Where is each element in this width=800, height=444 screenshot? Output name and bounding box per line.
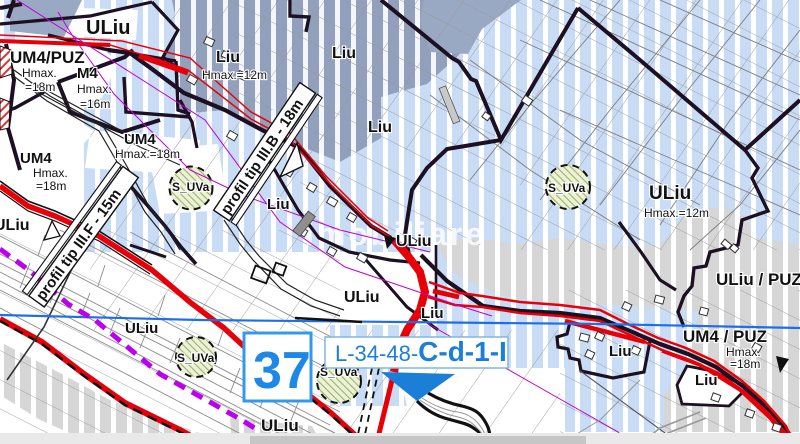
svg-text:ULiu: ULiu bbox=[125, 320, 158, 337]
svg-text:UM4: UM4 bbox=[20, 150, 52, 167]
svg-text:UM4 / PUZ: UM4 / PUZ bbox=[683, 327, 767, 346]
svg-text:S_UVa: S_UVa bbox=[177, 351, 215, 365]
svg-text:ULiu: ULiu bbox=[86, 17, 130, 39]
svg-text:M4: M4 bbox=[77, 65, 98, 82]
svg-text:Hmax.=18m: Hmax.=18m bbox=[115, 147, 180, 161]
svg-text:=18m: =18m bbox=[36, 179, 66, 193]
svg-text:=18m: =18m bbox=[25, 80, 55, 94]
svg-text:37: 37 bbox=[253, 342, 311, 400]
svg-text:Hmax.: Hmax. bbox=[33, 166, 68, 180]
svg-text:ULiu: ULiu bbox=[261, 416, 299, 435]
svg-text:S_UVa: S_UVa bbox=[548, 181, 586, 195]
svg-text:Liu: Liu bbox=[267, 196, 290, 213]
svg-text:ULiu / PUZ: ULiu / PUZ bbox=[716, 270, 800, 289]
svg-text:UM4/PUZ: UM4/PUZ bbox=[10, 48, 85, 67]
svg-text:S_UVa: S_UVa bbox=[172, 180, 210, 194]
svg-text:Liu: Liu bbox=[216, 49, 240, 66]
svg-text:Liu: Liu bbox=[609, 343, 632, 360]
svg-text:Liu: Liu bbox=[695, 372, 718, 389]
svg-text:L-34-48-C-d-1-I: L-34-48-C-d-1-I bbox=[335, 336, 507, 367]
svg-text:Hmax.=12m: Hmax.=12m bbox=[644, 206, 709, 220]
svg-text:Hmax.: Hmax. bbox=[22, 66, 57, 80]
svg-text:Liu: Liu bbox=[368, 119, 392, 136]
svg-text:UM4: UM4 bbox=[124, 131, 156, 148]
svg-text:Hmax.=12m: Hmax.=12m bbox=[202, 68, 267, 82]
svg-text:Hmax.: Hmax. bbox=[77, 82, 112, 96]
svg-text:=18m: =18m bbox=[730, 357, 760, 371]
svg-text:Liu: Liu bbox=[421, 305, 444, 322]
svg-text:ULiu: ULiu bbox=[0, 217, 30, 234]
svg-text:=16m: =16m bbox=[80, 97, 110, 111]
svg-text:ULiu: ULiu bbox=[649, 183, 691, 204]
svg-text:Liu: Liu bbox=[332, 45, 356, 62]
svg-text:ULiu: ULiu bbox=[344, 289, 380, 306]
svg-text:ULiu: ULiu bbox=[396, 233, 432, 250]
